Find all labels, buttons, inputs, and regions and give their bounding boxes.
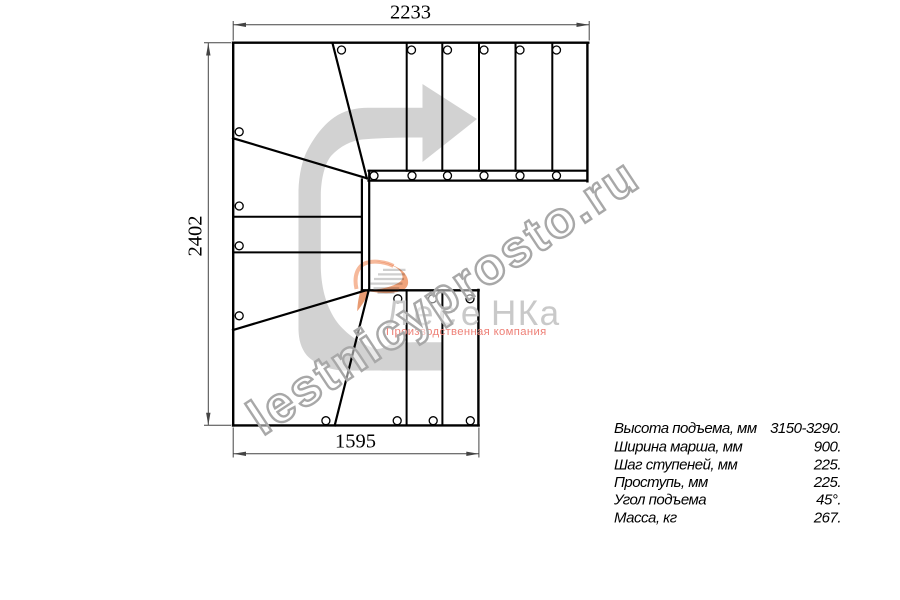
svg-text:Масса, кг: Масса, кг xyxy=(614,510,678,527)
svg-text:45°.: 45°. xyxy=(816,492,841,509)
svg-text:Угол подъема: Угол подъема xyxy=(613,492,706,509)
svg-text:Проступь, мм: Проступь, мм xyxy=(614,474,708,491)
svg-text:225.: 225. xyxy=(813,457,841,474)
svg-text:2233: 2233 xyxy=(390,2,431,24)
svg-text:Ширина марша, мм: Ширина марша, мм xyxy=(614,439,742,456)
svg-text:Высота подъема, мм: Высота подъема, мм xyxy=(614,420,757,437)
svg-text:Шаг ступеней, мм: Шаг ступеней, мм xyxy=(614,457,738,474)
svg-text:900.: 900. xyxy=(814,439,841,456)
svg-text:267.: 267. xyxy=(813,510,841,527)
svg-text:3150-3290.: 3150-3290. xyxy=(770,420,841,437)
svg-text:225.: 225. xyxy=(813,474,841,491)
svg-text:1595: 1595 xyxy=(335,431,376,453)
svg-text:2402: 2402 xyxy=(185,216,207,257)
